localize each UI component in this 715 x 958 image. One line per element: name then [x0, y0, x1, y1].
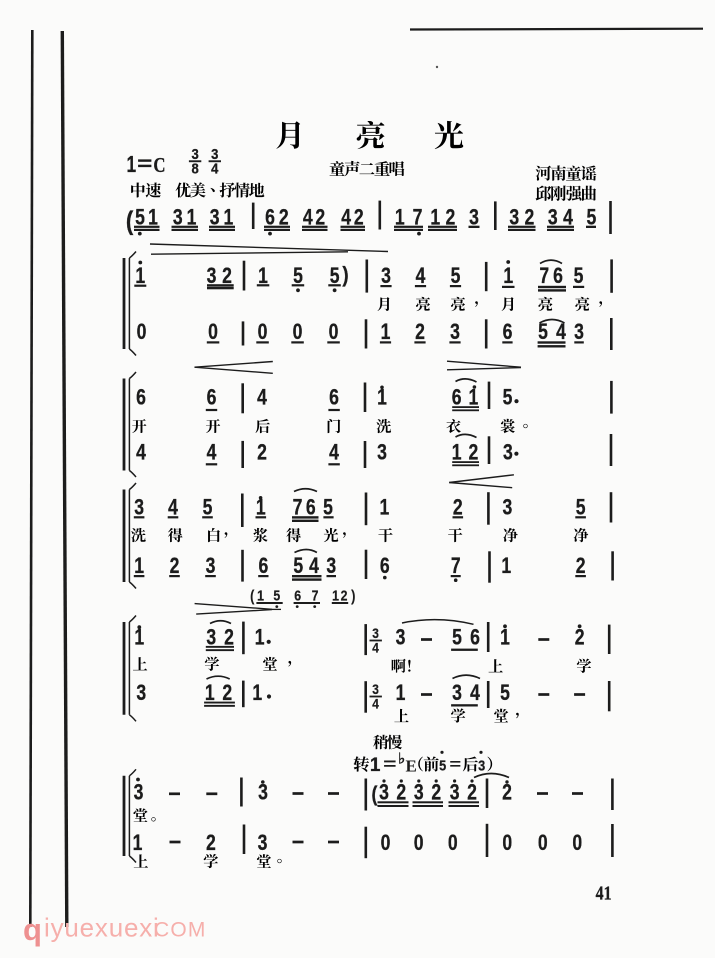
- svg-text:3: 3: [258, 831, 268, 855]
- svg-text:4: 4: [136, 441, 146, 465]
- svg-text:6: 6: [503, 320, 513, 344]
- svg-text:1: 1: [134, 626, 144, 650]
- svg-text:3: 3: [377, 441, 387, 465]
- svg-text:6: 6: [136, 386, 146, 410]
- svg-text:.COM: .COM: [147, 919, 207, 942]
- svg-text:2: 2: [576, 554, 586, 578]
- svg-text:5: 5: [500, 681, 510, 705]
- svg-text:3: 3: [134, 781, 144, 805]
- svg-text:1: 1: [133, 831, 143, 855]
- svg-text:): ): [342, 264, 348, 288]
- svg-text:3: 3: [258, 781, 268, 805]
- svg-text:0: 0: [572, 831, 582, 855]
- svg-text:3: 3: [211, 146, 219, 162]
- svg-text:0: 0: [258, 320, 268, 344]
- svg-text:3: 3: [381, 264, 391, 288]
- svg-text:=: =: [383, 755, 396, 774]
- svg-text:1: 1: [134, 554, 144, 578]
- svg-text:5: 5: [451, 264, 461, 288]
- svg-text:q: q: [23, 912, 42, 947]
- svg-text:6: 6: [470, 626, 480, 650]
- svg-text:3: 3: [452, 681, 462, 705]
- svg-text:0: 0: [208, 320, 218, 344]
- svg-text:3: 3: [503, 441, 513, 465]
- svg-text:1: 1: [396, 681, 406, 705]
- svg-text:1: 1: [503, 264, 513, 288]
- svg-text:3: 3: [503, 496, 513, 520]
- svg-text:4: 4: [309, 554, 319, 578]
- svg-text:5: 5: [452, 626, 462, 650]
- svg-text:(: (: [126, 207, 133, 236]
- svg-text:1: 1: [501, 554, 511, 578]
- svg-text:5: 5: [439, 756, 446, 773]
- svg-text:2: 2: [341, 587, 348, 603]
- svg-text:3: 3: [191, 146, 199, 162]
- svg-text:4: 4: [372, 640, 379, 656]
- svg-text:7: 7: [312, 587, 319, 603]
- svg-text:1: 1: [500, 626, 510, 650]
- svg-text:2: 2: [502, 781, 512, 805]
- svg-text:41: 41: [596, 882, 612, 904]
- svg-text:7: 7: [539, 264, 549, 288]
- svg-text:5: 5: [538, 320, 548, 344]
- svg-text:4: 4: [470, 681, 480, 705]
- svg-text:0: 0: [293, 320, 303, 344]
- svg-text:0: 0: [502, 831, 512, 855]
- svg-text:(: (: [372, 783, 378, 807]
- svg-text:7: 7: [451, 554, 461, 578]
- svg-text:(: (: [250, 588, 255, 605]
- svg-text:=: =: [449, 756, 461, 773]
- svg-text:3: 3: [396, 626, 406, 650]
- svg-text:1: 1: [377, 386, 387, 410]
- svg-text:4: 4: [207, 441, 217, 465]
- svg-text:0: 0: [414, 831, 424, 855]
- svg-text:1: 1: [252, 681, 262, 705]
- svg-text:0: 0: [448, 831, 458, 855]
- svg-text:): ): [351, 588, 356, 605]
- svg-text:6: 6: [259, 554, 269, 578]
- svg-text:1: 1: [370, 755, 381, 776]
- svg-text:3: 3: [574, 320, 584, 344]
- svg-text:0: 0: [538, 831, 548, 855]
- svg-text:1: 1: [257, 587, 264, 603]
- svg-text:6: 6: [329, 386, 339, 410]
- svg-text:4: 4: [556, 320, 566, 344]
- svg-text:6: 6: [207, 386, 217, 410]
- svg-text:E: E: [406, 757, 417, 776]
- svg-text:2: 2: [206, 831, 216, 855]
- svg-text:5: 5: [273, 587, 280, 603]
- svg-text:6: 6: [294, 587, 301, 603]
- svg-text:=: =: [137, 153, 152, 174]
- svg-text:1: 1: [332, 587, 339, 603]
- svg-text:5: 5: [574, 264, 584, 288]
- svg-text:♭: ♭: [398, 752, 405, 768]
- svg-text:3: 3: [136, 681, 146, 705]
- svg-text:6: 6: [553, 264, 563, 288]
- svg-text:1: 1: [255, 626, 265, 650]
- svg-text:4: 4: [257, 386, 267, 410]
- svg-text:2: 2: [575, 626, 585, 650]
- svg-text:4: 4: [372, 696, 379, 712]
- svg-text:3: 3: [206, 554, 216, 578]
- svg-text:5: 5: [293, 554, 303, 578]
- svg-text:1: 1: [380, 496, 390, 520]
- svg-text:2: 2: [415, 320, 425, 344]
- svg-text:0: 0: [137, 320, 147, 344]
- svg-text:1: 1: [127, 153, 137, 178]
- svg-text:C: C: [153, 154, 165, 177]
- svg-text:4: 4: [211, 161, 219, 177]
- svg-text:8: 8: [191, 161, 199, 177]
- svg-text:3: 3: [326, 554, 336, 578]
- svg-text:3: 3: [450, 320, 460, 344]
- svg-text:4: 4: [416, 264, 426, 288]
- svg-text:iyuexuexi: iyuexuexi: [44, 913, 160, 943]
- svg-text:0: 0: [381, 831, 391, 855]
- svg-text:2: 2: [170, 554, 180, 578]
- svg-text:6: 6: [380, 554, 390, 578]
- svg-text:1: 1: [381, 320, 391, 344]
- svg-text:0: 0: [329, 320, 339, 344]
- svg-text:2: 2: [257, 441, 267, 465]
- svg-text:5: 5: [503, 386, 513, 410]
- svg-text:4: 4: [329, 441, 339, 465]
- svg-text:3: 3: [478, 756, 485, 773]
